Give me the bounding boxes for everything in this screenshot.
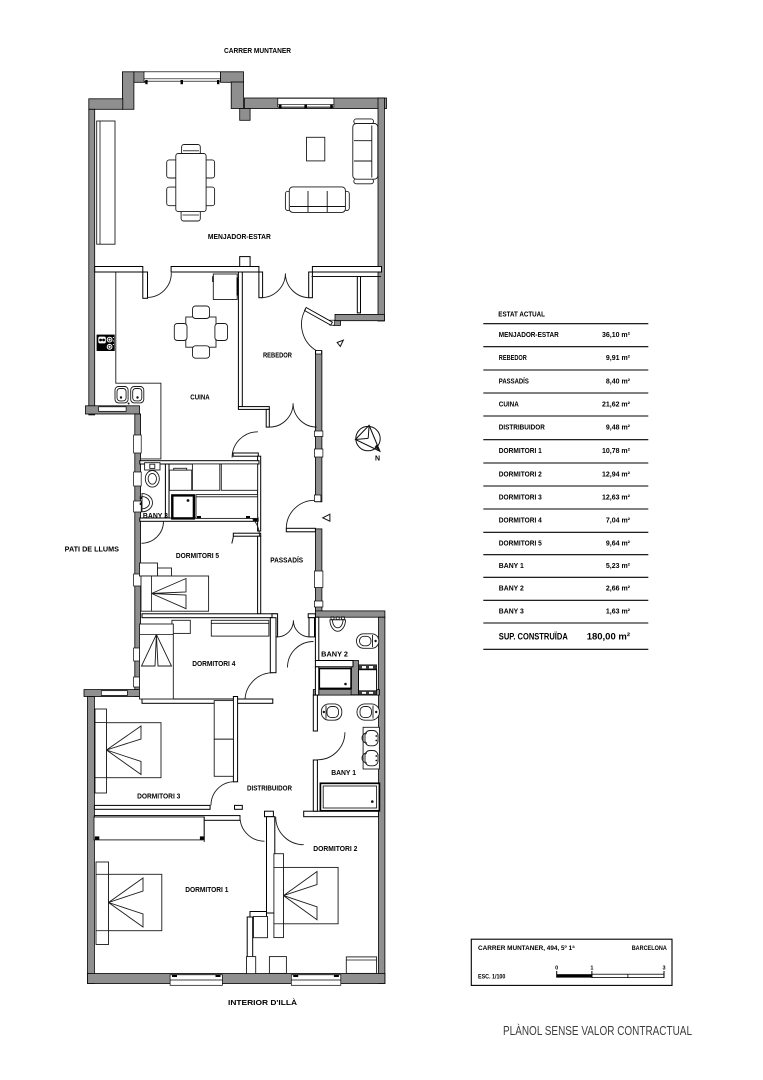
- svg-text:INTERIOR D'ILLÀ: INTERIOR D'ILLÀ: [228, 998, 297, 1007]
- svg-text:PLÀNOL SENSE VALOR CONTRACTUAL: PLÀNOL SENSE VALOR CONTRACTUAL: [503, 1023, 692, 1038]
- svg-text:DISTRIBUIDOR: DISTRIBUIDOR: [499, 424, 545, 431]
- svg-text:36,10 m²: 36,10 m²: [602, 332, 631, 339]
- svg-text:7,04 m²: 7,04 m²: [606, 517, 631, 524]
- svg-text:BANY 1: BANY 1: [331, 770, 356, 777]
- svg-text:180,00 m²: 180,00 m²: [587, 632, 630, 643]
- svg-text:DORMITORI 2: DORMITORI 2: [499, 471, 542, 478]
- svg-text:DORMITORI 3: DORMITORI 3: [137, 793, 180, 800]
- svg-text:DORMITORI 1: DORMITORI 1: [499, 448, 542, 455]
- svg-text:PASSADÍS: PASSADÍS: [270, 556, 303, 565]
- svg-text:12,63 m²: 12,63 m²: [602, 494, 631, 501]
- svg-text:BARCELONA: BARCELONA: [632, 945, 667, 952]
- svg-text:CUINA: CUINA: [499, 401, 519, 408]
- svg-text:N: N: [375, 456, 380, 463]
- svg-text:BANY 2: BANY 2: [321, 652, 348, 659]
- svg-text:21,62 m²: 21,62 m²: [602, 401, 631, 408]
- svg-text:PASSADÍS: PASSADÍS: [499, 376, 529, 385]
- svg-text:1,63 m²: 1,63 m²: [606, 609, 631, 616]
- svg-text:3: 3: [662, 966, 665, 972]
- svg-text:9,91 m²: 9,91 m²: [606, 355, 631, 362]
- svg-text:0: 0: [555, 966, 558, 972]
- svg-text:5,23 m²: 5,23 m²: [606, 563, 631, 570]
- svg-text:DORMITORI 4: DORMITORI 4: [192, 661, 235, 668]
- svg-text:9,64 m²: 9,64 m²: [606, 541, 631, 548]
- svg-text:BANY 3: BANY 3: [143, 513, 168, 520]
- svg-text:REBEDOR: REBEDOR: [263, 353, 292, 360]
- svg-text:MENJADOR-ESTAR: MENJADOR-ESTAR: [208, 234, 271, 241]
- svg-text:BANY 2: BANY 2: [499, 586, 524, 593]
- svg-text:8,40 m²: 8,40 m²: [606, 378, 631, 385]
- svg-text:CUINA: CUINA: [190, 394, 209, 401]
- svg-text:2,66 m²: 2,66 m²: [606, 586, 631, 593]
- svg-text:DORMITORI 5: DORMITORI 5: [176, 553, 219, 560]
- svg-text:MENJADOR-ESTAR: MENJADOR-ESTAR: [499, 332, 559, 339]
- svg-text:BANY 1: BANY 1: [499, 563, 524, 570]
- svg-text:DORMITORI 1: DORMITORI 1: [185, 887, 228, 894]
- svg-text:1: 1: [590, 966, 593, 972]
- svg-text:12,94 m²: 12,94 m²: [602, 471, 631, 478]
- svg-text:CARRER MUNTANER: CARRER MUNTANER: [224, 48, 291, 55]
- svg-text:DORMITORI 4: DORMITORI 4: [499, 517, 542, 524]
- svg-text:PATI DE LLUMS: PATI DE LLUMS: [65, 546, 120, 553]
- svg-text:10,78 m²: 10,78 m²: [602, 448, 631, 455]
- svg-text:DISTRIBUIDOR: DISTRIBUIDOR: [247, 786, 292, 793]
- svg-text:ESC. 1/100: ESC. 1/100: [478, 973, 506, 980]
- svg-text:DORMITORI 3: DORMITORI 3: [499, 494, 542, 501]
- svg-text:ESTAT ACTUAL: ESTAT ACTUAL: [498, 311, 545, 318]
- svg-text:9,48 m²: 9,48 m²: [606, 424, 631, 431]
- svg-text:REBEDOR: REBEDOR: [499, 355, 527, 362]
- svg-text:DORMITORI 2: DORMITORI 2: [313, 846, 357, 853]
- svg-text:DORMITORI 5: DORMITORI 5: [499, 541, 542, 548]
- svg-text:BANY 3: BANY 3: [499, 609, 524, 616]
- svg-text:SUP. CONSTRUÏDA: SUP. CONSTRUÏDA: [499, 632, 568, 643]
- svg-text:CARRER MUNTANER, 494, 5º 1ª: CARRER MUNTANER, 494, 5º 1ª: [478, 945, 575, 952]
